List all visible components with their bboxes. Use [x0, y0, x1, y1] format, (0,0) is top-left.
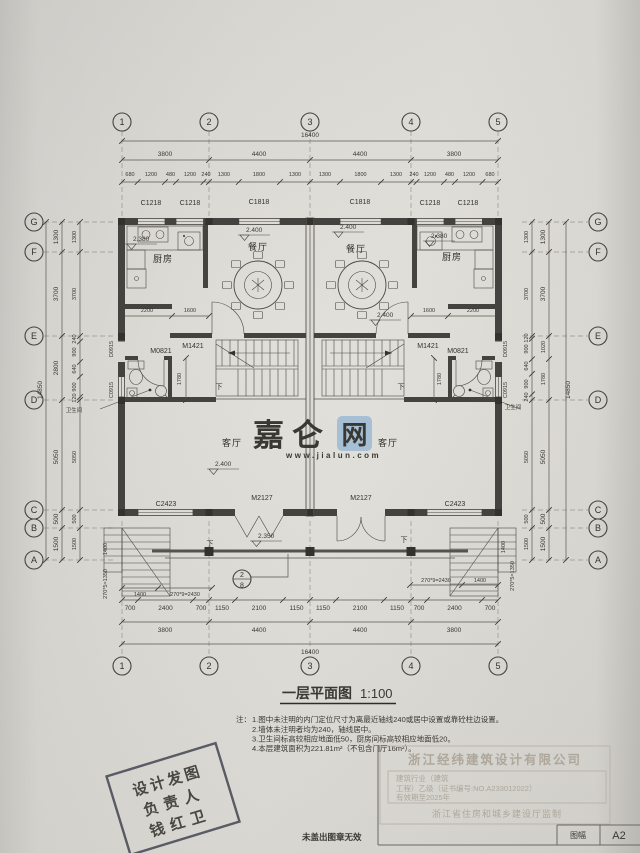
dim-right-inner: 640	[524, 361, 530, 370]
dim-entry: 270*9=2430	[421, 578, 451, 584]
dim-kitchen: 2200	[141, 308, 153, 314]
dim-entry-side: 270*5=1350	[103, 569, 109, 599]
grid-col-1-bottom: 1	[119, 661, 124, 671]
dim-right-inner: 1300	[524, 231, 530, 243]
unit-left-fixtures	[100, 218, 310, 596]
tag-m2127: M2127	[251, 495, 273, 502]
dim-entry: 1400	[134, 592, 146, 598]
title-text: 一层平面图	[282, 685, 352, 701]
grid-row-g-left: G	[30, 217, 37, 227]
dim-top-detail: 1300	[289, 172, 301, 178]
grid-row-c-right: C	[595, 505, 602, 515]
entrance-door-right	[337, 516, 385, 541]
dim-entry-side: 1400	[501, 541, 507, 553]
dim-right-mid: 500	[540, 513, 547, 524]
note-line: 4.本层建筑面积为221.81m²（不包含门厅16m²）。	[252, 743, 416, 753]
tag-c2423: C2423	[445, 501, 466, 508]
dim-entry-side: 1400	[103, 543, 109, 555]
sheet-size-value: A2	[612, 830, 625, 842]
dim-left-inner: 120	[72, 393, 78, 402]
tag-m2127: M2127	[350, 495, 372, 502]
dim-left-inner: 1300	[72, 231, 78, 243]
section-sheet: 8	[240, 583, 244, 590]
seal-note: 未盖出图章无效	[301, 832, 362, 842]
dim-right-mid: 1020	[541, 341, 547, 353]
watermark: 嘉仑 网 www.jialun.com	[253, 416, 381, 460]
dim-top-detail: 240	[409, 172, 418, 178]
dim-entry-side: 270*5=1350	[510, 561, 516, 591]
grid-row-b-right: B	[595, 523, 601, 533]
right-dimensions: 1300 3700 120 900 640 900 240 5050 500 1…	[524, 229, 572, 551]
dim-bottom-bay: 4400	[353, 627, 368, 634]
dim-bottom-bay: 4400	[252, 627, 267, 634]
dim-bottom-bay: 3800	[158, 627, 173, 634]
room-living-right: 客厅	[378, 437, 398, 448]
cert-line: 建筑行业（建筑	[396, 773, 449, 783]
dim-bottom-detail: 2400	[158, 605, 173, 612]
dim-right-inner: 120	[524, 333, 530, 342]
tag-c1818: C1818	[249, 199, 270, 206]
tag-m0821: M0821	[447, 348, 469, 355]
tag-c0915: C0915	[503, 382, 509, 398]
dim-bottom-detail: 700	[125, 605, 136, 612]
title-scale: 1:100	[360, 686, 393, 701]
notes-prefix: 注：	[236, 714, 251, 724]
watermark-url: www.jialun.com	[285, 451, 381, 460]
cert-line: 有效期至2025年	[396, 792, 451, 802]
section-number: 2	[240, 572, 244, 579]
grid-col-4-bottom: 4	[408, 661, 413, 671]
dim-left-outer: 500	[53, 513, 60, 524]
grid-col-3-bottom: 3	[307, 661, 312, 671]
dim-top-detail: 1300	[390, 172, 402, 178]
drawing-notes: 注： 1.图中未注明的内门定位尺寸为离最近轴线240或居中设置或靠砼柱边设置。 …	[236, 714, 503, 753]
dim-top-detail: 480	[166, 172, 175, 178]
dim-left-outer: 5050	[53, 449, 60, 464]
grid-row-d-right: D	[595, 395, 602, 405]
dim-right-inner: 500	[524, 514, 530, 523]
company-name: 浙江经纬建筑设计有限公司	[408, 752, 582, 767]
grid-row-a-left: A	[31, 555, 37, 565]
dim-top-detail: 1800	[253, 172, 265, 178]
dim-entry: 270*9=2430	[170, 592, 200, 598]
unit-right-fixtures	[310, 218, 520, 596]
dim-top-detail: 480	[445, 172, 454, 178]
dim-top-detail: 1300	[218, 172, 230, 178]
grid-col-1-top: 1	[119, 117, 124, 127]
grid-col-2-bottom: 2	[206, 661, 211, 671]
tag-c0915: C0915	[109, 382, 115, 398]
tag-m1421: M1421	[182, 343, 204, 350]
dim-bottom-detail: 2100	[252, 605, 267, 612]
certificate-block: 浙江经纬建筑设计有限公司 建筑行业（建筑 工程）乙级（证书编号:NO.A2330…	[380, 746, 610, 824]
grid-row-g-right: G	[594, 217, 601, 227]
grid-col-3-top: 3	[307, 117, 312, 127]
dim-left-inner: 900	[72, 347, 78, 356]
tag-d0915: D0915	[503, 341, 509, 357]
entry-down-right: 下	[401, 536, 408, 544]
dim-left-inner: 240	[72, 334, 78, 343]
dim-left-inner: 5050	[72, 451, 78, 463]
dim-top-bay: 3800	[447, 151, 462, 158]
tag-c2423: C2423	[156, 501, 177, 508]
drawing-title: 一层平面图 1:100	[280, 685, 396, 704]
dim-entry: 1400	[474, 578, 486, 584]
dim-right-inner: 1500	[524, 538, 530, 550]
dim-top-detail: 1300	[319, 172, 331, 178]
tag-c1218: C1218	[458, 200, 479, 207]
dim-bottom-detail: 1150	[316, 605, 330, 612]
dim-left-total: 14850	[37, 381, 44, 399]
level-dining-right: 2.400	[340, 224, 357, 231]
dim-top-detail: 680	[485, 172, 494, 178]
dim-left-inner: 1500	[72, 538, 78, 550]
dim-bottom-detail: 700	[414, 605, 425, 612]
room-bath-left: 卫生间	[66, 406, 83, 414]
grid-col-4-top: 4	[408, 117, 413, 127]
level-kitchen-right: 2.380	[431, 233, 448, 240]
dim-left-inner: 3700	[72, 288, 78, 300]
entry-down-left: 下	[207, 540, 214, 548]
dim-left-inner: 500	[72, 514, 78, 523]
dim-stair-depth: 1780	[177, 373, 183, 385]
dim-right-inner: 900	[524, 344, 530, 353]
grid-row-a-right: A	[595, 555, 601, 565]
dim-left-outer: 2800	[53, 360, 60, 375]
tag-m0821: M0821	[150, 348, 172, 355]
designer-stamp: 设计发图 负责人 钱红卫	[107, 743, 240, 853]
cert-footer: 浙江省住房和城乡建设厅监制	[432, 808, 562, 819]
dim-top-detail: 1200	[145, 172, 157, 178]
dim-right-inner: 5050	[524, 451, 530, 463]
level-living-left: 2.400	[215, 461, 232, 468]
dim-right-mid: 5050	[540, 449, 547, 464]
dim-bottom-detail: 1150	[390, 605, 404, 612]
note-line: 2.墙体未注明者均为240，轴线居中。	[252, 724, 376, 734]
dim-stair-depth: 1780	[437, 373, 443, 385]
tag-c1218: C1218	[141, 200, 162, 207]
dim-kitchen: 1600	[423, 308, 435, 314]
room-living-left: 客厅	[222, 437, 242, 448]
dim-bottom-bay: 3800	[447, 627, 462, 634]
dim-left-outer: 1300	[53, 229, 60, 244]
cert-line: 工程）乙级（证书编号:NO.A233012022）	[396, 783, 536, 793]
dim-bottom-detail: 2100	[353, 605, 368, 612]
dim-top-bay: 4400	[252, 151, 267, 158]
dim-left-outer: 3700	[53, 286, 60, 301]
dim-left-inner: 900	[72, 382, 78, 391]
party-wall	[306, 218, 314, 516]
room-bath-right: 卫生间	[505, 403, 522, 411]
floor-plan-drawing: 2 8 2.400 2.400 2.380 2.380 2.400 2.400 …	[0, 0, 640, 853]
dim-left-outer: 1500	[53, 536, 60, 551]
tag-c1218: C1218	[420, 200, 441, 207]
dim-top-detail: 1200	[424, 172, 436, 178]
elevation-markers: 2.400 2.400 2.380 2.380 2.400 2.400 2.35…	[125, 224, 455, 547]
dim-top-detail: 240	[201, 172, 210, 178]
tag-d0915: D0915	[109, 341, 115, 357]
tag-m1421: M1421	[417, 343, 439, 350]
dim-right-inner: 240	[524, 392, 530, 401]
dim-right-mid: 1500	[540, 536, 547, 551]
stair-down-right: 下	[398, 383, 405, 391]
dim-right-mid: 1300	[540, 229, 547, 244]
room-kitchen-left: 厨房	[153, 253, 173, 264]
dim-right-inner: 900	[524, 379, 530, 388]
tag-c1818: C1818	[350, 199, 371, 206]
grid-row-f-left: F	[31, 247, 37, 257]
level-porch: 2.350	[258, 533, 275, 540]
sheet-size-label: 图幅	[570, 830, 586, 840]
room-kitchen-right: 厨房	[442, 251, 462, 262]
blueprint-photo: 2 8 2.400 2.400 2.380 2.380 2.400 2.400 …	[0, 0, 640, 853]
level-hall-right: 2.400	[377, 312, 394, 319]
dim-bottom-total: 16400	[301, 649, 319, 656]
grid-row-e-left: E	[31, 331, 37, 341]
dim-bottom-detail: 700	[485, 605, 496, 612]
watermark-boxed-char: 网	[341, 420, 367, 450]
room-dining-left: 餐厅	[248, 241, 268, 252]
dim-left-inner: 640	[72, 364, 78, 373]
dim-top-bay: 4400	[353, 151, 368, 158]
room-dining-right: 餐厅	[346, 243, 366, 254]
dim-top-detail: 1800	[354, 172, 366, 178]
grid-row-f-right: F	[595, 247, 601, 257]
grid-row-c-left: C	[31, 505, 38, 515]
dim-right-mid: 3700	[540, 286, 547, 301]
dim-right-inner: 3700	[524, 288, 530, 300]
note-line: 1.图中未注明的内门定位尺寸为离最近轴线240或居中设置或靠砼柱边设置。	[252, 714, 503, 724]
dim-bottom-detail: 1150	[290, 605, 304, 612]
grid-col-5-top: 5	[495, 117, 500, 127]
tag-c1218: C1218	[180, 200, 201, 207]
dim-top-detail: 1200	[184, 172, 196, 178]
grid-col-2-top: 2	[206, 117, 211, 127]
dim-kitchen: 1600	[184, 308, 196, 314]
dim-top-total: 16400	[301, 132, 319, 139]
level-kitchen-left: 2.380	[133, 236, 150, 243]
dim-top-bay: 3800	[158, 151, 173, 158]
dim-right-mid: 1780	[541, 373, 547, 385]
grid-col-5-bottom: 5	[495, 661, 500, 671]
section-callout: 2 8	[233, 554, 288, 590]
watermark-text: 嘉仑	[253, 418, 331, 453]
note-line: 3.卫生间标高较相应地面低50，厨房间标高较相应地面低20。	[252, 734, 455, 744]
dim-bottom-detail: 1150	[215, 605, 229, 612]
dim-bottom-detail: 2400	[447, 605, 462, 612]
grid-row-e-right: E	[595, 331, 601, 341]
stair-down-left: 下	[216, 383, 223, 391]
grid-row-b-left: B	[31, 523, 37, 533]
dim-bottom-detail: 700	[196, 605, 207, 612]
left-dimensions: 1300 3700 2800 5050 500 1500 1300 3700 2…	[37, 229, 78, 551]
dim-top-detail: 680	[125, 172, 134, 178]
level-dining-left: 2.400	[246, 227, 263, 234]
dim-kitchen: 2200	[467, 308, 479, 314]
dim-top-detail: 1200	[463, 172, 475, 178]
dim-right-total: 14850	[565, 381, 572, 399]
